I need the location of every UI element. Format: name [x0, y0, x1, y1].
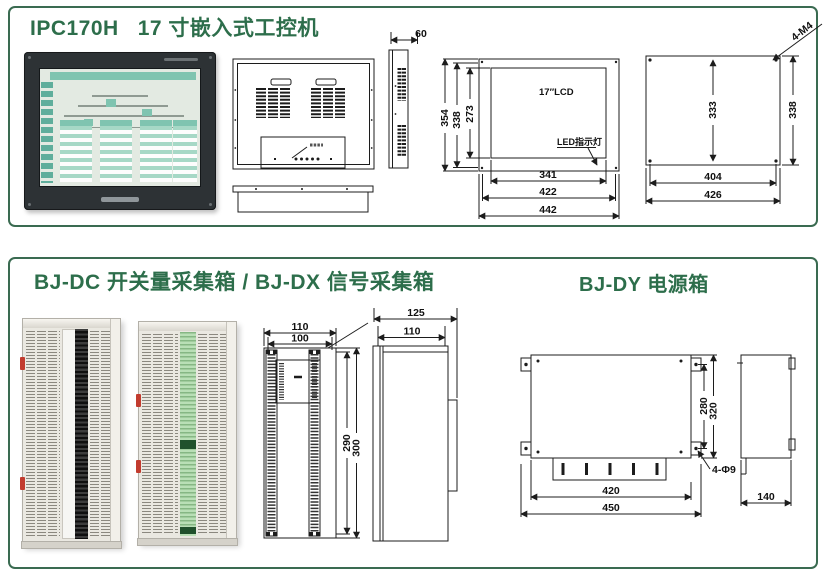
cabinet-side: [110, 319, 120, 545]
brand-logo: [101, 197, 139, 202]
dim-front-width-mid: 422: [539, 186, 557, 198]
din-clip: [20, 357, 25, 370]
dim-box-width-inner: 100: [291, 333, 309, 345]
cabinet-top: [23, 319, 120, 328]
terminal-strip-green: [180, 332, 196, 536]
dim-cutout-height-outer: 338: [787, 101, 799, 119]
terminal-strip-black: [75, 329, 88, 539]
terminal-block: [180, 527, 196, 534]
bj-dy-dimension-drawing: 280 320 4-Φ9 420 450 140: [510, 338, 822, 522]
panel-pc-photo: [24, 52, 216, 210]
bj-dc-photo: [22, 318, 121, 546]
dim-cutout-width-outer: 426: [704, 189, 722, 201]
terminal-block: [180, 440, 196, 449]
bj-section-title: BJ-DC 开关量采集箱 / BJ-DX 信号采集箱: [34, 266, 434, 296]
din-clip: [136, 394, 141, 407]
connector-panel: [261, 137, 345, 168]
dim-dy-width-inner: 420: [602, 485, 620, 497]
scada-table: [140, 120, 172, 182]
dim-box-depth-inner: 110: [404, 326, 421, 338]
ipc-section-title: IPC170H 17 寸嵌入式工控机: [30, 12, 319, 42]
vent-texture: [90, 331, 112, 537]
scada-table: [100, 120, 132, 182]
screw-dot: [28, 56, 31, 59]
dim-front-height-mid: 338: [451, 111, 463, 129]
scada-table: [60, 120, 92, 182]
scada-button-column: [41, 82, 53, 183]
dy-hole-label: 4-Φ9: [712, 464, 736, 476]
bj-box-dimension-drawing: 110 100 290 300 125 110: [250, 300, 465, 548]
cabinet-base: [21, 541, 122, 549]
side-view-drawing: 60: [383, 26, 431, 174]
bj-dy-title: BJ-DY 电源箱: [579, 268, 709, 297]
bj-dx-photo: [138, 321, 237, 543]
scada-title-bar: [50, 72, 196, 80]
cutout-dimension-drawing: 4-M4 333 338 404 426: [632, 8, 830, 208]
dim-dy-depth: 140: [757, 491, 775, 503]
dim-front-height-outer: 354: [439, 109, 451, 127]
top-view-drawing: [233, 186, 373, 212]
cabinet-base: [137, 538, 238, 546]
screw-dot: [209, 203, 212, 206]
lcd-size-label: 17″LCD: [539, 87, 574, 98]
screw-dot: [209, 56, 212, 59]
dim-cutout-height-inner: 333: [707, 101, 719, 119]
vent-grid: [261, 88, 340, 118]
dim-box-width-outer: 110: [292, 321, 309, 333]
cabinet-side: [226, 322, 236, 542]
dim-front-width-outer: 442: [539, 204, 557, 216]
din-clip: [20, 477, 25, 490]
front-dimension-drawing: 17″LCD LED指示灯 354 338 273 341 422 442: [438, 28, 636, 224]
dim-box-height-outer: 300: [351, 439, 363, 457]
vent-texture: [198, 334, 226, 534]
cutout-screw-label: 4-M4: [789, 19, 815, 43]
dim-side-depth: 60: [415, 28, 427, 40]
vent-texture: [26, 331, 60, 537]
handle-slot: [316, 79, 336, 85]
screw-dot: [28, 203, 31, 206]
dim-front-width-lcd: 341: [539, 169, 557, 181]
catalog-page: IPC170H 17 寸嵌入式工控机: [0, 0, 830, 579]
led-indicator-label: LED指示灯: [557, 136, 602, 147]
handle-slot: [271, 79, 291, 85]
dim-front-height-lcd: 273: [464, 105, 476, 123]
cabinet-top: [139, 322, 236, 331]
dim-dy-height-outer: 320: [708, 402, 720, 420]
scada-table: [173, 120, 197, 182]
dim-dy-width-outer: 450: [602, 502, 620, 514]
panel-pc-screen: [39, 68, 201, 187]
rear-view-drawing: [226, 50, 378, 218]
bezel-print: [164, 58, 198, 61]
terminal-strip: [62, 329, 76, 539]
dim-cutout-width-inner: 404: [704, 171, 722, 183]
dim-box-depth-outer: 125: [407, 307, 425, 319]
din-clip: [136, 460, 141, 473]
vent-texture: [142, 334, 178, 534]
